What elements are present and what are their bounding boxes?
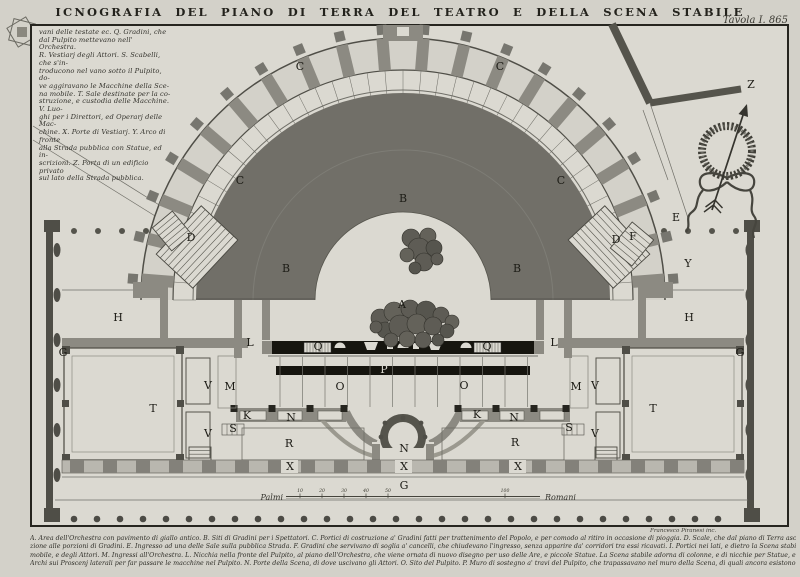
plan-label-L: L bbox=[246, 336, 254, 349]
plan-label-V: V bbox=[203, 427, 213, 440]
plan-label-G: G bbox=[736, 346, 745, 359]
legend-line: chine. X. Porte di Vestiarj. Y. Arco di … bbox=[39, 129, 171, 144]
plan-label-O: O bbox=[459, 379, 468, 392]
stage-machinery-lines bbox=[280, 357, 528, 407]
plan-label-N: N bbox=[509, 411, 519, 424]
engraver-signature: Francesco Piranesi inc. bbox=[650, 528, 716, 534]
plan-label-H: H bbox=[684, 311, 694, 324]
caption-line: Archi sui Proscenj laterali per far pass… bbox=[30, 560, 796, 568]
legend-line: struzione, e custodia delle Macchine. V.… bbox=[39, 98, 171, 113]
side-hall-left bbox=[62, 346, 184, 462]
plan-label-Q: Q bbox=[482, 340, 491, 353]
legend-line: alla Strada pubblica con Statue, ed in- bbox=[39, 145, 171, 160]
plan-label-D: D bbox=[187, 231, 196, 244]
scale-suffix: Romani bbox=[544, 493, 576, 502]
plan-label-V: V bbox=[590, 379, 600, 392]
plan-label-R: R bbox=[511, 436, 520, 449]
plan-label-X: X bbox=[400, 460, 408, 473]
plan-label-N: N bbox=[399, 442, 409, 455]
scale-tick-label: 20 bbox=[318, 488, 325, 494]
engraved-plate: ICNOGRAFIA DEL PIANO DI TERRA DEL TEATRO… bbox=[0, 0, 800, 577]
plan-label-C: C bbox=[557, 174, 565, 187]
plan-label-Y: Y bbox=[683, 257, 692, 270]
wreath-and-arrow-emblem bbox=[686, 104, 756, 238]
plan-label-Z: Z bbox=[747, 78, 755, 91]
plan-label-D: D bbox=[612, 233, 621, 246]
caption-line: mobile, e degli Attori. M. Ingressi all'… bbox=[30, 552, 796, 560]
scale-tick-label: 100 bbox=[501, 488, 510, 494]
plan-label-T: T bbox=[149, 402, 157, 415]
plan-label-S: S bbox=[565, 421, 573, 434]
plan-label-C: C bbox=[296, 60, 304, 73]
plan-label-V: V bbox=[590, 427, 600, 440]
plan-label-S: S bbox=[229, 422, 237, 435]
plan-label-X: X bbox=[286, 460, 294, 473]
plan-label-G: G bbox=[400, 479, 409, 492]
legend-line: scrizioni. Z. Porta di un edificio priva… bbox=[39, 160, 171, 175]
legend-text-block: vani delle testate ec. Q. Gradini, cheda… bbox=[39, 29, 171, 183]
plan-label-C: C bbox=[496, 60, 504, 73]
plan-label-H: H bbox=[113, 311, 123, 324]
bottom-colonnade-dots bbox=[71, 516, 722, 523]
legend-line: sul lato della Strada pubblica. bbox=[39, 175, 171, 183]
plan-label-X: X bbox=[514, 460, 522, 473]
plan-label-E: E bbox=[672, 211, 680, 224]
caption-line: A. Area dell'Orchestra con pavimento di … bbox=[30, 535, 796, 543]
plan-label-K: K bbox=[473, 408, 482, 421]
legend-line: ghi per i Direttori, ed Operarj delle Ma… bbox=[39, 114, 171, 129]
plan-label-B: B bbox=[282, 262, 290, 275]
legend-line: dal Pulpito mettevano nell' Orchestra. bbox=[39, 37, 171, 52]
plan-label-N: N bbox=[286, 411, 296, 424]
plan-label-O: O bbox=[335, 380, 344, 393]
rubble-mounds bbox=[370, 228, 459, 348]
scale-tick-label: 10 bbox=[297, 488, 303, 494]
legend-line: troducono nel vano sotto il Pulpito, do- bbox=[39, 68, 171, 83]
plan-label-K: K bbox=[243, 409, 252, 422]
plan-label-Q: Q bbox=[313, 340, 322, 353]
plan-label-L: L bbox=[550, 336, 558, 349]
caption-line: zione alle porzioni di Gradini. E. Ingre… bbox=[30, 543, 796, 551]
legend-line: R. Vestiarj degli Attori. S. Scabelli, c… bbox=[39, 52, 171, 67]
plan-label-V: V bbox=[203, 379, 213, 392]
plan-label-M: M bbox=[570, 380, 581, 393]
scale-prefix: Palmi bbox=[260, 493, 284, 502]
plan-label-A: A bbox=[397, 298, 407, 311]
plan-label-F: F bbox=[629, 230, 637, 243]
scale-tick-label: 30 bbox=[341, 488, 347, 494]
plan-label-G: G bbox=[59, 346, 68, 359]
plan-label-T: T bbox=[649, 402, 657, 415]
plan-label-P: P bbox=[380, 363, 388, 376]
caption-text-block: A. Area dell'Orchestra con pavimento di … bbox=[30, 535, 796, 569]
plan-label-M: M bbox=[224, 380, 235, 393]
plan-label-R: R bbox=[285, 437, 294, 450]
scale-tick-label: 50 bbox=[385, 488, 391, 494]
plan-label-C: C bbox=[236, 174, 244, 187]
plan-label-B: B bbox=[513, 262, 521, 275]
side-hall-right bbox=[622, 346, 744, 462]
scale-tick-label: 40 bbox=[362, 488, 369, 494]
plan-label-B: B bbox=[399, 192, 407, 205]
